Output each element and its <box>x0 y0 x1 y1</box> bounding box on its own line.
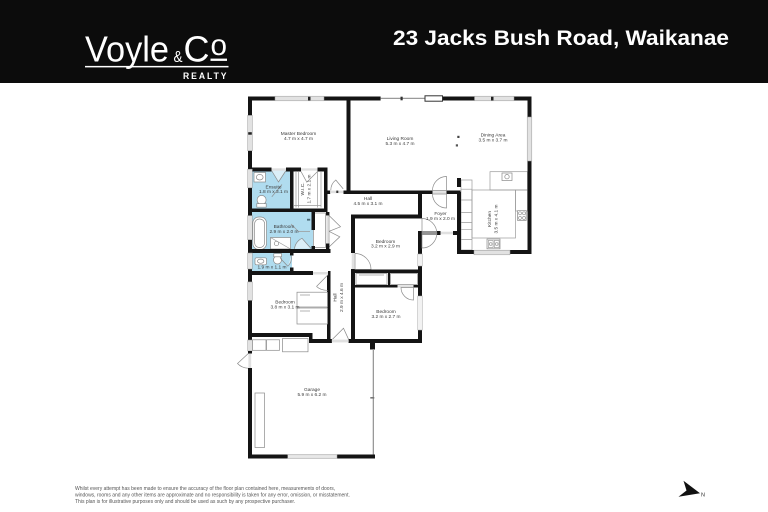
svg-text:3.2 m x 2.7 m: 3.2 m x 2.7 m <box>371 314 400 320</box>
svg-text:3.5 m x 4.1 m: 3.5 m x 4.1 m <box>494 204 500 233</box>
svg-text:Kitchen: Kitchen <box>487 211 493 227</box>
svg-text:W.I.C.: W.I.C. <box>300 182 306 195</box>
svg-text:o: o <box>211 29 228 62</box>
svg-text:1.7 m x 2.1 m: 1.7 m x 2.1 m <box>307 174 313 203</box>
svg-text:5.3 m x 4.7 m: 5.3 m x 4.7 m <box>385 141 414 147</box>
svg-text:windows, rooms and any other i: windows, rooms and any other items are a… <box>75 493 350 499</box>
svg-text:4.5 m x 3.1 m: 4.5 m x 3.1 m <box>353 201 382 207</box>
svg-text:1.8 m x 3.1 m: 1.8 m x 3.1 m <box>259 189 288 195</box>
svg-text:This plan is for illustrative: This plan is for illustrative purposes o… <box>75 499 295 505</box>
svg-text:5.9 m x 6.2 m: 5.9 m x 6.2 m <box>297 392 326 398</box>
svg-text:2.9 m x 4.6 m: 2.9 m x 4.6 m <box>339 283 345 312</box>
svg-text:2.9 m x 2.0 m: 2.9 m x 2.0 m <box>269 229 298 235</box>
svg-text:3.5 m x 3.7 m: 3.5 m x 3.7 m <box>478 138 507 144</box>
svg-text:&: & <box>174 49 183 66</box>
svg-text:Voyle: Voyle <box>85 29 169 70</box>
svg-text:1.9 m x 2.0 m: 1.9 m x 2.0 m <box>426 216 455 222</box>
svg-text:C: C <box>184 29 210 70</box>
svg-text:3.8 m x 3.1 m: 3.8 m x 3.1 m <box>270 304 299 310</box>
svg-text:REALTY: REALTY <box>183 71 229 81</box>
svg-text:N: N <box>701 493 705 499</box>
svg-text:23 Jacks Bush Road, Waikanae: 23 Jacks Bush Road, Waikanae <box>393 27 729 50</box>
svg-text:3.2 m x 2.9 m: 3.2 m x 2.9 m <box>371 244 400 250</box>
svg-text:Hall: Hall <box>333 293 339 301</box>
svg-text:4.7 m x 4.7 m: 4.7 m x 4.7 m <box>284 136 313 142</box>
svg-text:1.9 m x 1.1 m: 1.9 m x 1.1 m <box>257 264 286 270</box>
svg-text:Whilst every attempt has been: Whilst every attempt has been made to en… <box>75 486 335 492</box>
